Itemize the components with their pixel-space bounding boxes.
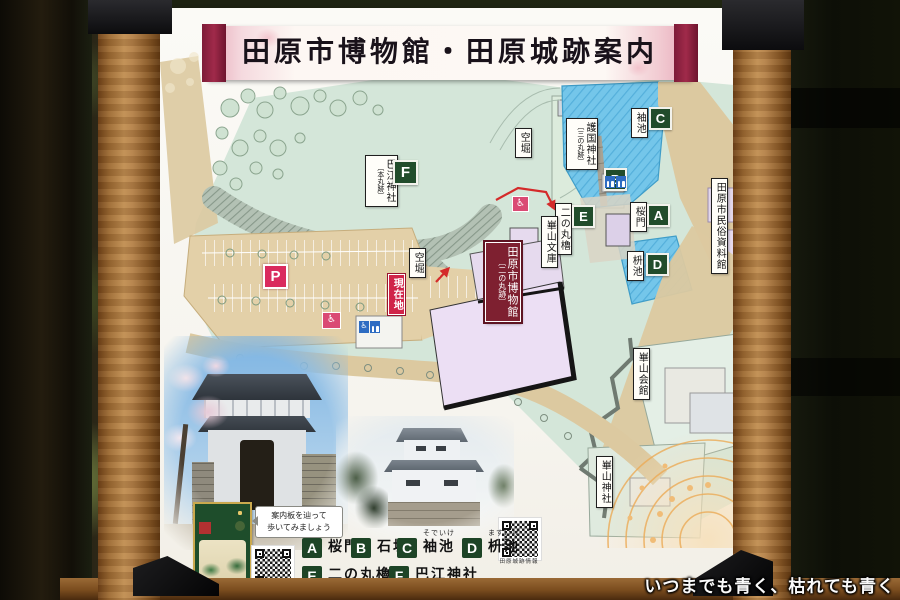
legend-label-c: 袖池 bbox=[423, 538, 455, 558]
legend-badge-d: D bbox=[462, 538, 482, 558]
photo-ninomaru-yagura bbox=[336, 416, 514, 540]
background-foliage-right bbox=[788, 0, 900, 600]
tree-trunk bbox=[0, 0, 92, 600]
map-badge-d: D bbox=[646, 253, 669, 276]
label-current-location: 現在地 bbox=[388, 274, 405, 315]
sign-title: 田原市博物館・田原城跡案内 bbox=[208, 26, 692, 80]
title-banner: 田原市博物館・田原城跡案内 bbox=[208, 26, 692, 80]
label-karahori-1: 空堀 bbox=[515, 128, 532, 158]
legend-badge-c: C bbox=[397, 538, 417, 558]
map-badge-f: F bbox=[393, 160, 418, 185]
frame-post-cap-left bbox=[88, 0, 172, 34]
label-karahori-2: 空堀 bbox=[409, 248, 426, 278]
frame-post-cap-right bbox=[722, 0, 804, 50]
legend-furigana-d: ますいけ bbox=[488, 530, 520, 538]
legend-furigana-c: そでいけ bbox=[423, 530, 455, 538]
wheelchair-icon: ♿ bbox=[322, 312, 341, 329]
map-badge-a: A bbox=[647, 204, 670, 227]
wheelchair-icon: ♿ bbox=[359, 321, 369, 333]
label-sakuramon: 桜門 bbox=[630, 202, 647, 232]
sakuramon-building bbox=[606, 214, 630, 246]
frame-post-left bbox=[98, 0, 160, 600]
label-gokoku-jinja: 護国神社 〔三の丸跡〕 bbox=[566, 118, 598, 170]
map-badge-e: E bbox=[572, 205, 595, 228]
map-badge-c: C bbox=[649, 107, 672, 130]
red-seal-icon bbox=[199, 522, 211, 534]
label-minzoku-shiryokan: 田原市民俗資料館 bbox=[711, 178, 728, 274]
label-kazan-jinja: 崋山神社 bbox=[596, 456, 613, 508]
speech-bubble: 案内板を辿って 歩いてみましょう bbox=[255, 506, 343, 538]
label-masuike: 枡池 bbox=[627, 251, 644, 281]
sign-board: 田原市博物館・田原城跡案内 護国神社 〔三の丸跡〕 袖池 桜門 枡池 二の丸櫓 … bbox=[160, 8, 738, 590]
legend-label-d: 枡池 bbox=[488, 538, 520, 558]
label-sodeike: 袖池 bbox=[631, 108, 648, 138]
restroom-male-female-icon bbox=[616, 176, 626, 188]
label-kazan-bunko: 崋山文庫 bbox=[541, 216, 558, 268]
photo-watermark: いつまでも青く、枯れても青く bbox=[644, 576, 895, 598]
photo-scene: 田原市博物館・田原城跡案内 護国神社 〔三の丸跡〕 袖池 桜門 枡池 二の丸櫓 … bbox=[0, 0, 900, 600]
restroom-male-female-icon bbox=[605, 176, 615, 188]
legend-badge-b: B bbox=[351, 538, 371, 558]
gold-crest-icon bbox=[235, 508, 245, 518]
restroom-male-female-icon bbox=[370, 321, 380, 333]
legend-badge-a: A bbox=[302, 538, 322, 558]
qr-caption: 田原城跡情報 bbox=[494, 559, 544, 566]
label-tahara-museum: 田原市博物館 〔二の丸跡〕 bbox=[485, 242, 521, 322]
wheelchair-icon: ♿ bbox=[512, 196, 529, 212]
frame-post-right bbox=[733, 0, 791, 600]
parking-icon: P bbox=[263, 264, 288, 289]
restroom-icon: ♿ bbox=[359, 321, 380, 333]
label-kazan-kaikan: 崋山会館 bbox=[633, 348, 650, 400]
restroom-icon bbox=[605, 176, 626, 188]
